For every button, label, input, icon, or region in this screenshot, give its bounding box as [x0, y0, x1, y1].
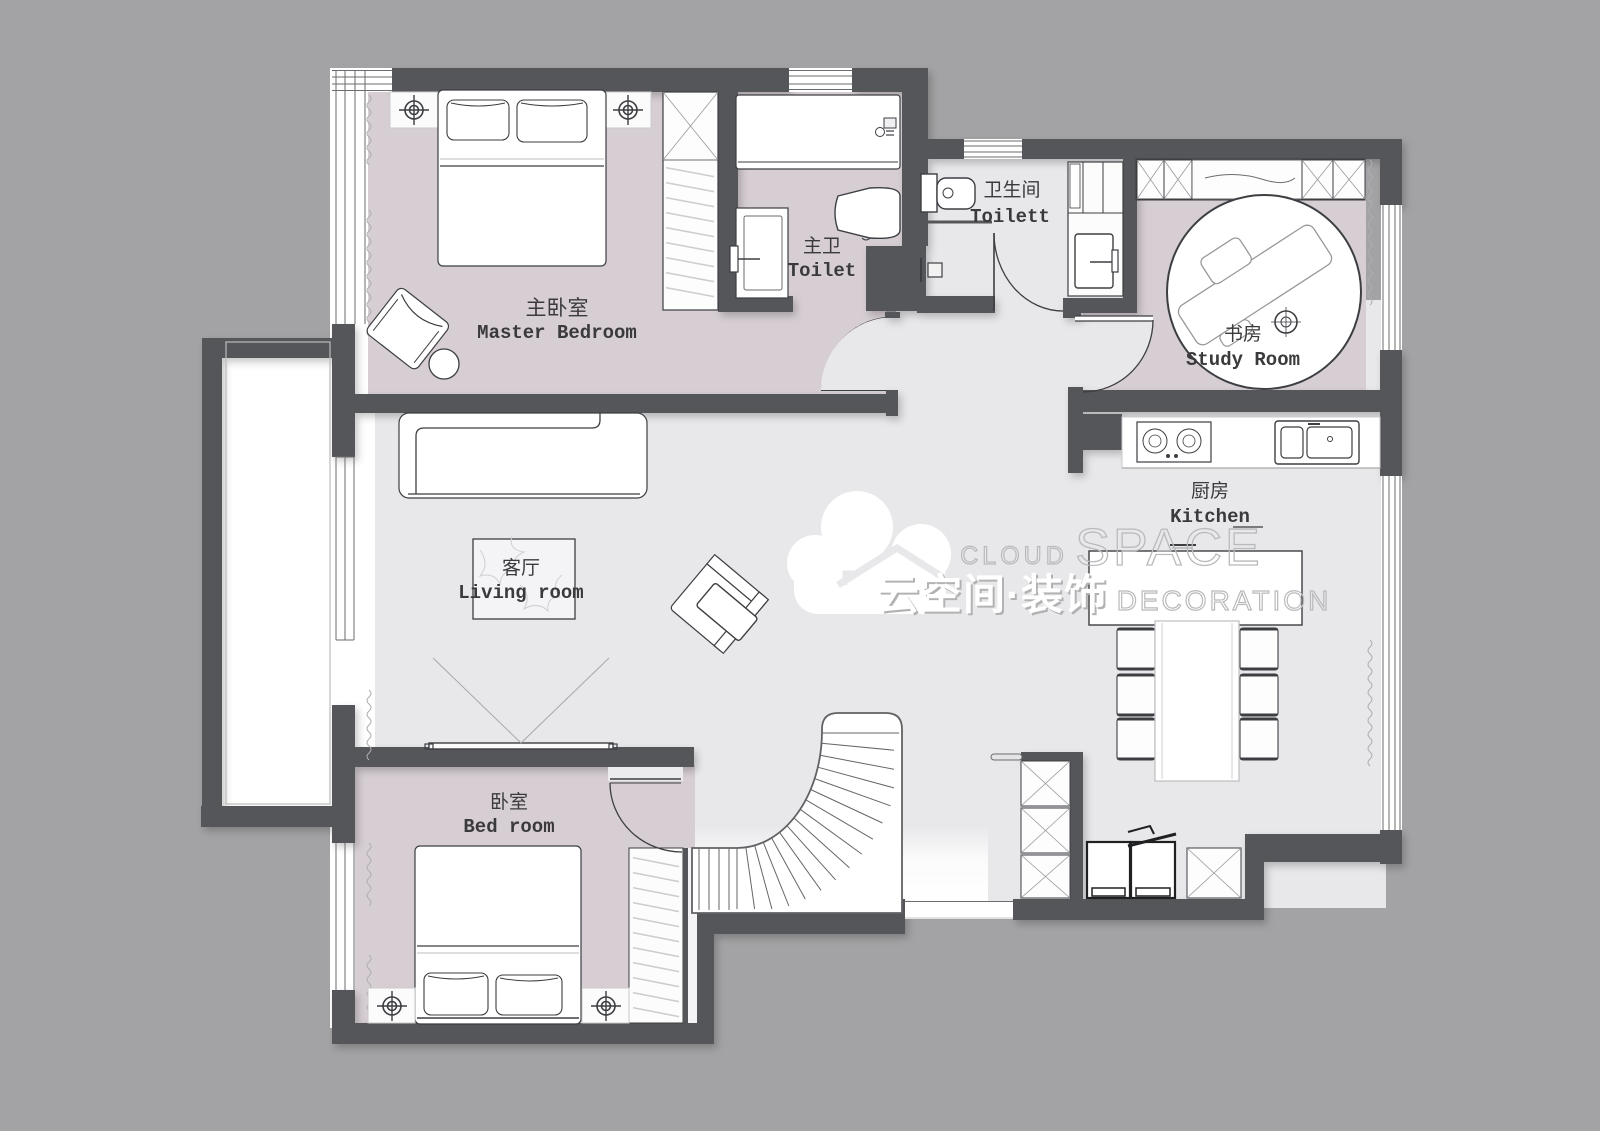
svg-text:SPACE: SPACE	[1075, 519, 1262, 577]
svg-text:主卫: 主卫	[803, 235, 841, 258]
svg-text:卧室: 卧室	[490, 791, 528, 814]
svg-text:Study Room: Study Room	[1186, 349, 1300, 371]
svg-text:厨房: 厨房	[1191, 480, 1229, 503]
svg-text:Toilett: Toilett	[970, 206, 1050, 228]
svg-text:Living room: Living room	[458, 582, 583, 604]
svg-text:Toilet: Toilet	[788, 260, 856, 282]
svg-text:客厅: 客厅	[502, 557, 540, 580]
svg-text:Bed room: Bed room	[463, 816, 554, 838]
svg-text:云空间·装饰: 云空间·装饰	[877, 571, 1107, 618]
svg-text:CLOUD: CLOUD	[960, 542, 1068, 570]
svg-text:书房: 书房	[1224, 323, 1262, 346]
svg-text:主卧室: 主卧室	[526, 297, 589, 322]
svg-text:Master Bedroom: Master Bedroom	[477, 322, 637, 344]
svg-text:DECORATION: DECORATION	[1117, 585, 1332, 616]
svg-text:卫生间: 卫生间	[983, 179, 1040, 202]
